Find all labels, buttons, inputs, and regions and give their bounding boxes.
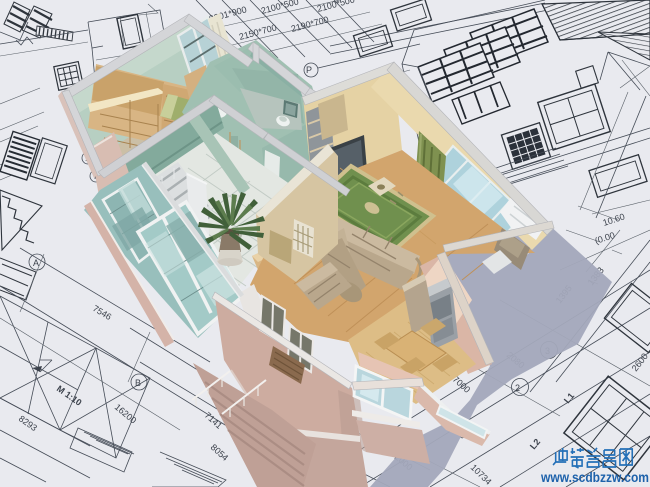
svg-text:B: B (135, 378, 141, 388)
svg-text:A: A (33, 258, 39, 268)
svg-text:P: P (306, 65, 312, 75)
svg-text:2: 2 (515, 383, 520, 393)
svg-text:www.scdbzzw.com: www.scdbzzw.com (540, 469, 649, 485)
